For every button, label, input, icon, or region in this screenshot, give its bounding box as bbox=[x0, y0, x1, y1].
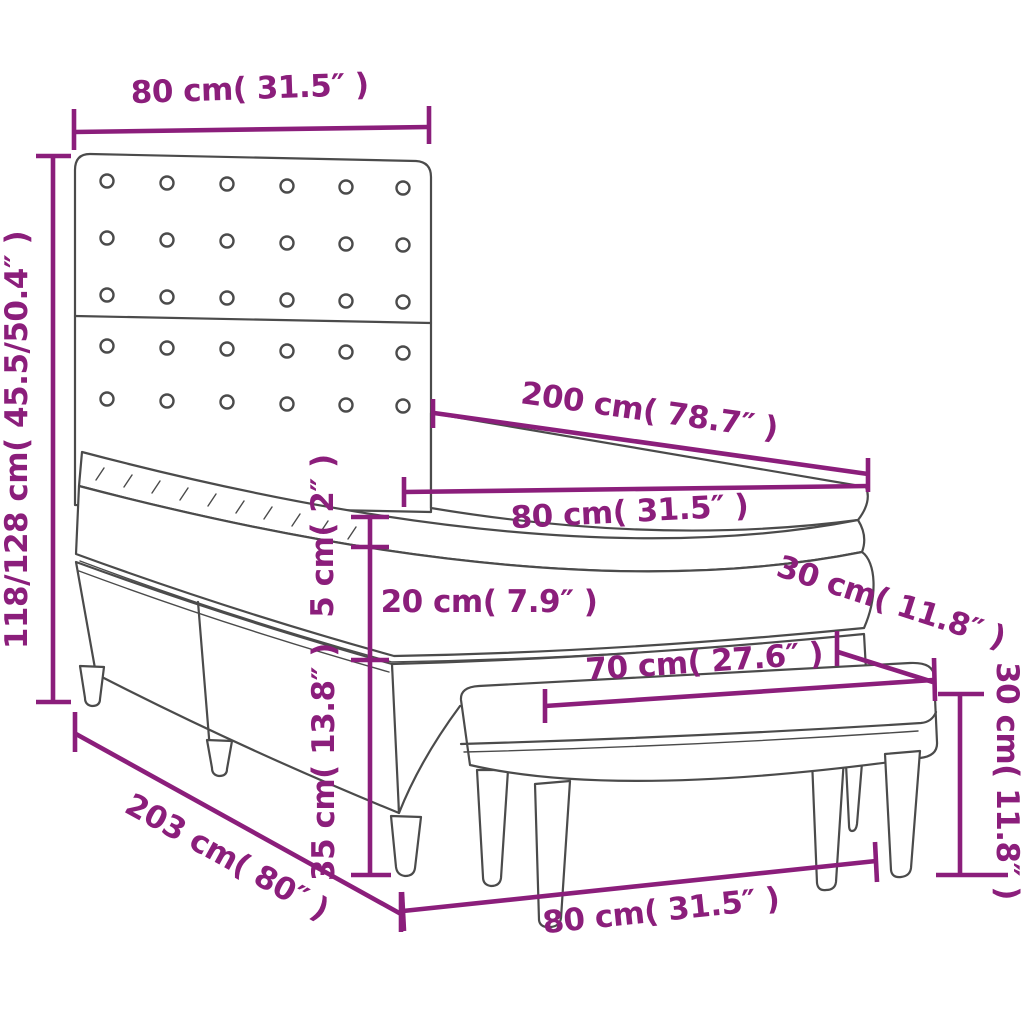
headboard-panel bbox=[75, 154, 431, 512]
dim-mattress-height-label: 20 cm( 7.9″ ) bbox=[381, 584, 598, 620]
dim-bench-height-label: 30 cm( 11.8″ ) bbox=[989, 662, 1024, 900]
dim-bed-height-label: 118/128 cm( 45.5/50.4″ ) bbox=[0, 231, 35, 649]
bench bbox=[461, 663, 937, 927]
dim-bench-width: 80 cm( 31.5″ ) bbox=[402, 842, 877, 941]
bench-back-leg bbox=[812, 758, 844, 890]
dim-base-height-label: 35 cm( 13.8″ ) bbox=[306, 643, 342, 881]
dim-topper-height-label: 5 cm( 2″ ) bbox=[305, 454, 341, 617]
dim-bed-height: 118/128 cm( 45.5/50.4″ ) bbox=[0, 156, 71, 702]
bed-dimension-diagram: 80 cm( 31.5″ ) 118/128 cm( 45.5/50.4″ ) … bbox=[0, 0, 1024, 1024]
headboard bbox=[75, 154, 431, 512]
dim-bench-width-label: 80 cm( 31.5″ ) bbox=[541, 881, 781, 942]
dim-headboard-width-label: 80 cm( 31.5″ ) bbox=[130, 67, 369, 111]
dim-headboard-width: 80 cm( 31.5″ ) bbox=[74, 67, 429, 150]
dim-bench-height: 30 cm( 11.8″ ) bbox=[936, 662, 1024, 900]
bench-back-leg-2 bbox=[846, 763, 862, 831]
